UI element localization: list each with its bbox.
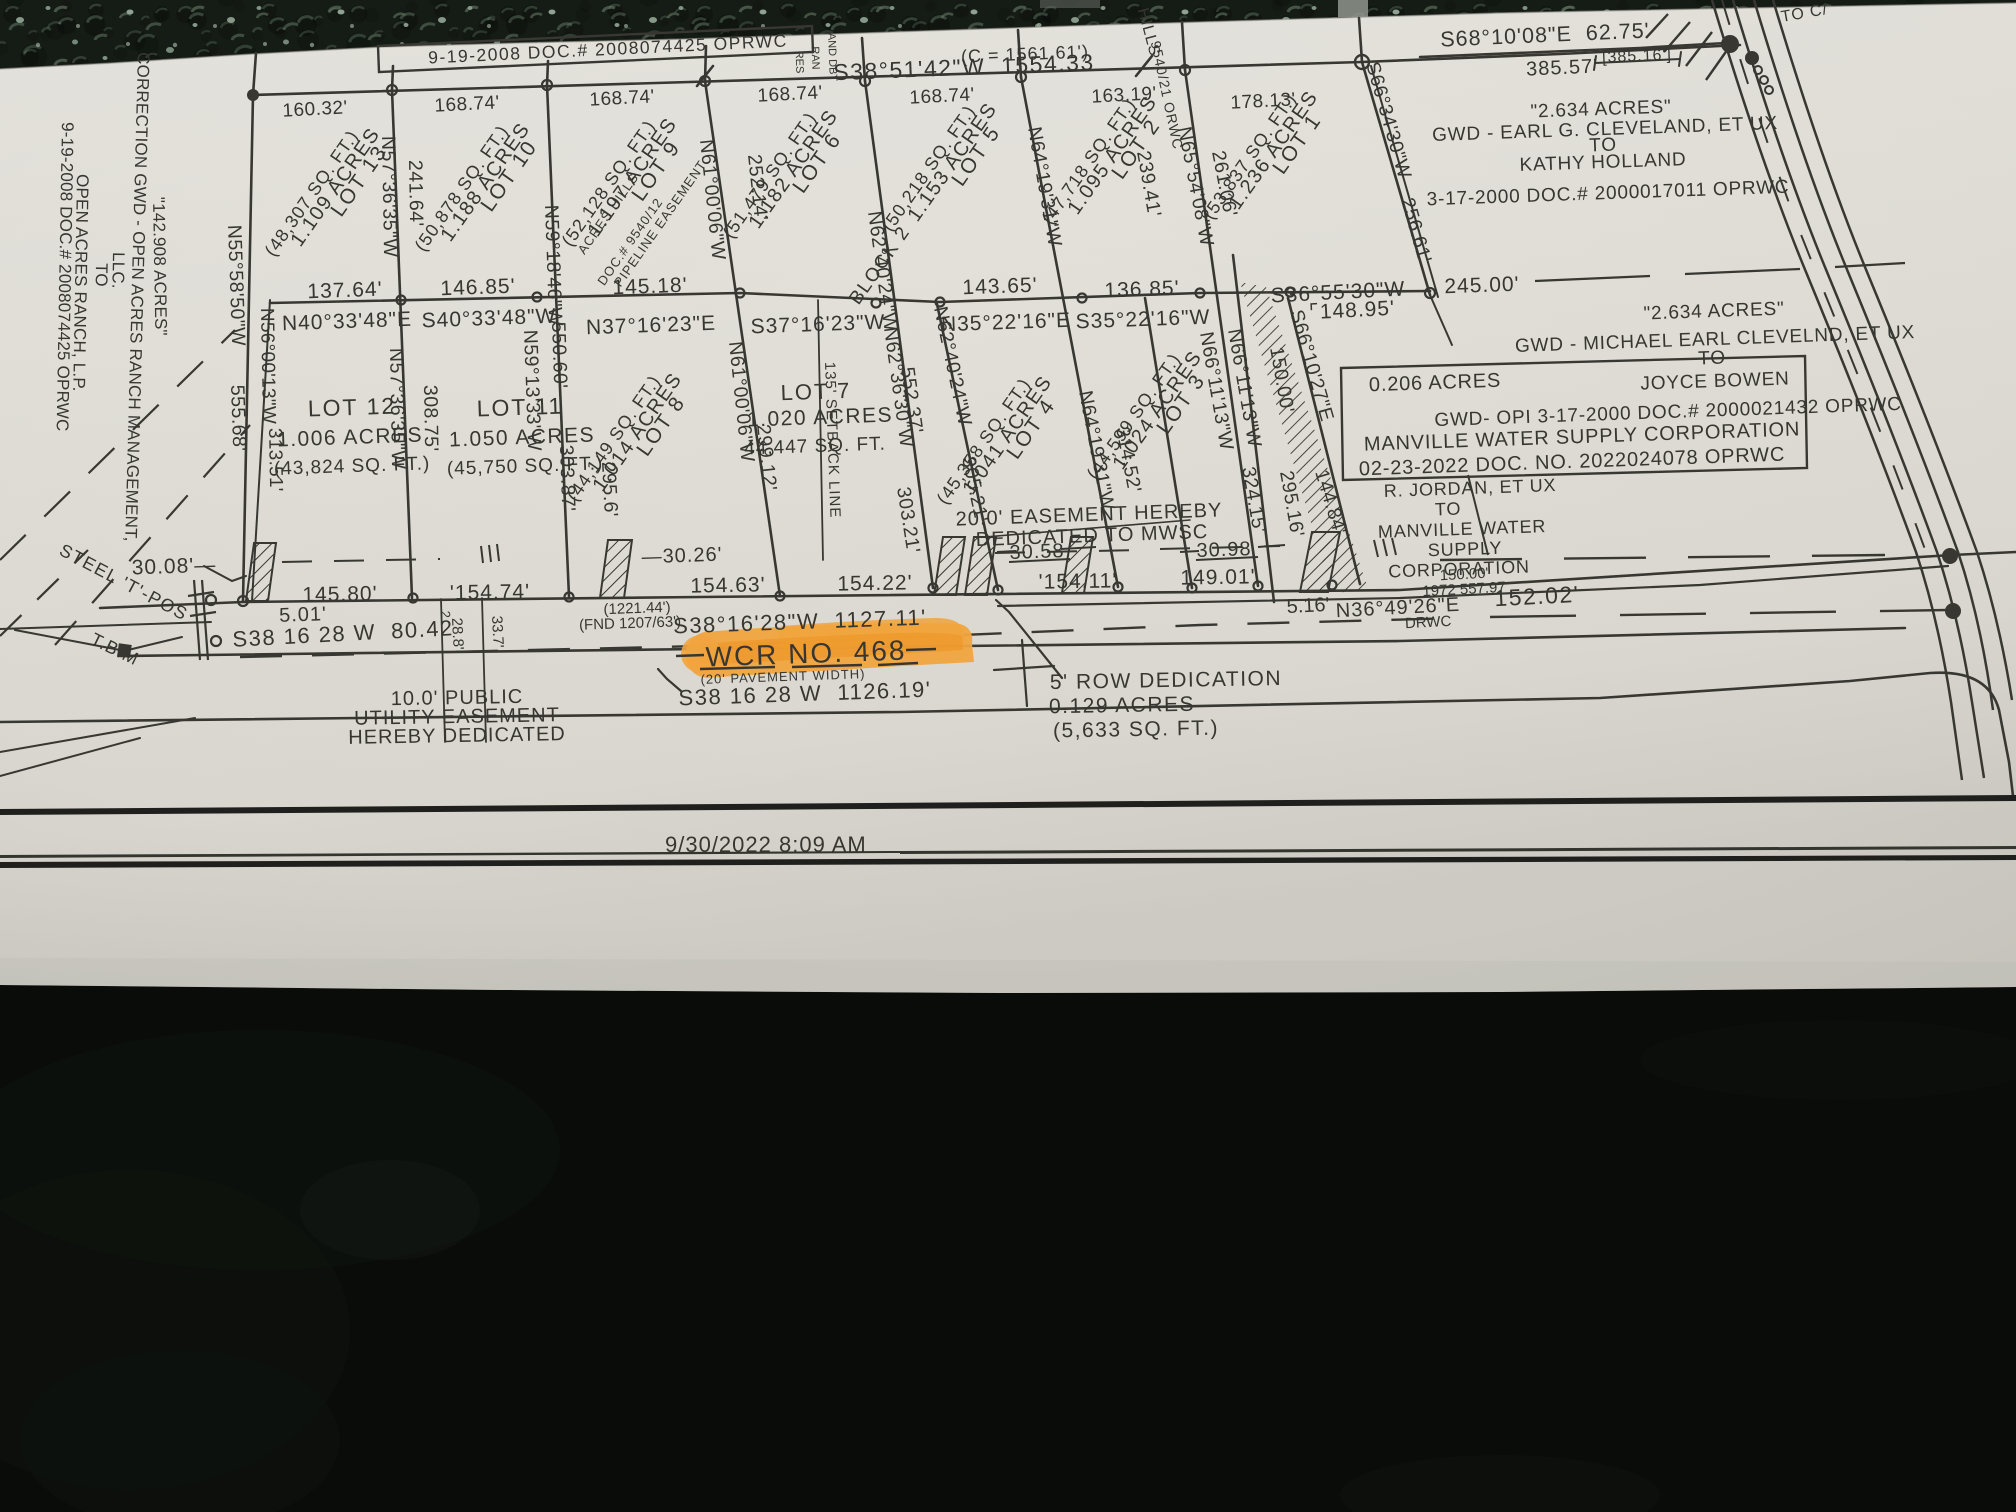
svg-text:28.8': 28.8' — [448, 617, 467, 650]
svg-text:⌜148.95': ⌜148.95' — [1308, 297, 1395, 324]
svg-text:33.7': 33.7' — [488, 615, 507, 648]
svg-text:S40°33'48"W: S40°33'48"W — [421, 305, 556, 333]
svg-text:0.129 ACRES: 0.129 ACRES — [1049, 693, 1195, 719]
svg-text:0.206 ACRES: 0.206 ACRES — [1369, 370, 1502, 397]
svg-text:30.58: 30.58 — [1009, 540, 1065, 564]
svg-text:S37°16'23"W: S37°16'23"W — [750, 311, 885, 339]
svg-text:HEREBY DEDICATED: HEREBY DEDICATED — [348, 723, 566, 749]
svg-text:'154.11': '154.11' — [1038, 569, 1117, 593]
svg-text:TO: TO — [1435, 499, 1462, 520]
svg-text:5.16': 5.16' — [1286, 594, 1330, 618]
svg-text:'154.74': '154.74' — [450, 580, 531, 604]
svg-text:152.02': 152.02' — [1494, 581, 1580, 611]
svg-text:[385.16']: [385.16'] — [1602, 46, 1673, 66]
svg-text:154.22': 154.22' — [837, 571, 913, 595]
svg-text:146.85': 146.85' — [440, 275, 516, 301]
svg-text:LOT 12: LOT 12 — [307, 392, 396, 421]
svg-text:OPEN ACRES RANCH, L.P.: OPEN ACRES RANCH, L.P. — [69, 174, 92, 392]
svg-text:154.63': 154.63' — [690, 573, 766, 597]
svg-text:2: 2 — [438, 610, 453, 618]
svg-text:550.60': 550.60' — [547, 321, 571, 389]
svg-text:(5,633 SQ. FT.): (5,633 SQ. FT.) — [1053, 717, 1219, 743]
svg-text:LOT 7: LOT 7 — [780, 378, 852, 405]
svg-text:N55°58'50"W: N55°58'50"W — [223, 224, 249, 346]
svg-text:LOT 11: LOT 11 — [476, 392, 563, 421]
svg-text:N56°00'13"W: N56°00'13"W — [256, 308, 279, 425]
svg-text:30.08'—: 30.08'— — [131, 554, 216, 580]
svg-text:TO: TO — [1698, 348, 1726, 370]
svg-text:(FND 1207/63'): (FND 1207/63') — [579, 613, 682, 634]
svg-text:—30.26': —30.26' — [641, 544, 723, 569]
svg-text:241.64': 241.64' — [404, 160, 427, 227]
svg-text:"142.908 ACRES": "142.908 ACRES" — [149, 197, 170, 336]
svg-text:149.01': 149.01' — [1180, 565, 1256, 589]
svg-text:RES: RES — [793, 51, 806, 74]
svg-text:168.74': 168.74' — [434, 92, 500, 116]
svg-text:N35°22'16"E: N35°22'16"E — [941, 309, 1072, 337]
svg-text:5' ROW DEDICATION: 5' ROW DEDICATION — [1050, 667, 1283, 694]
svg-text:AND DBT: AND DBT — [825, 33, 839, 82]
svg-text:30.98: 30.98 — [1196, 538, 1252, 562]
svg-text:RAN: RAN — [809, 46, 822, 70]
svg-text:168.74': 168.74' — [589, 86, 655, 110]
svg-text:160.32': 160.32' — [282, 97, 348, 121]
svg-text:LLC.: LLC. — [108, 252, 128, 289]
svg-text:DRWC: DRWC — [1405, 613, 1452, 632]
svg-text:136.85': 136.85' — [1104, 277, 1180, 303]
svg-text:555.68': 555.68' — [226, 384, 250, 452]
svg-text:385.57': 385.57' — [1526, 55, 1599, 80]
svg-text:150.00': 150.00' — [1439, 565, 1489, 585]
svg-text:S35°22'16"W: S35°22'16"W — [1075, 306, 1210, 334]
svg-text:137.64': 137.64' — [307, 278, 383, 304]
svg-text:TO: TO — [92, 263, 111, 287]
svg-text:245.00': 245.00' — [1444, 273, 1520, 299]
svg-text:N37°16'23"E: N37°16'23"E — [586, 312, 717, 340]
svg-text:168.74': 168.74' — [757, 82, 823, 106]
svg-text:N40°33'48"E: N40°33'48"E — [282, 308, 413, 336]
svg-text:143.65': 143.65' — [962, 274, 1038, 300]
